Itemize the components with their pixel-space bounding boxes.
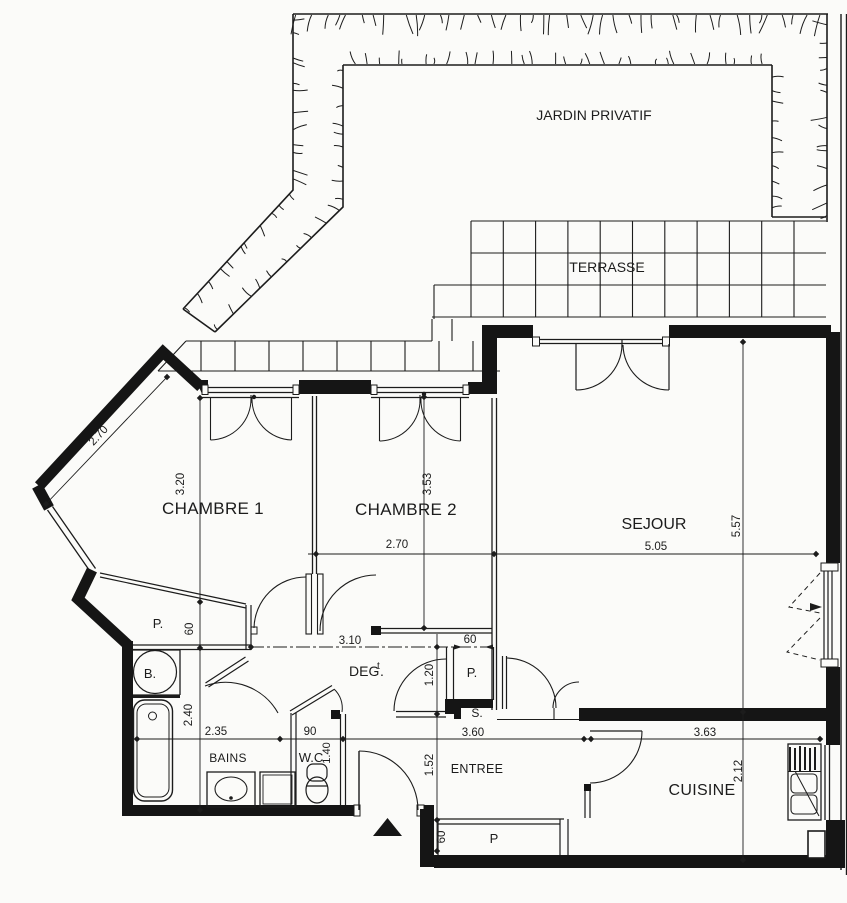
svg-text:TERRASSE: TERRASSE xyxy=(569,259,644,275)
svg-text:1.40: 1.40 xyxy=(321,742,333,763)
svg-text:2.70: 2.70 xyxy=(386,539,408,551)
svg-text:5.05: 5.05 xyxy=(645,541,667,553)
svg-text:3.60: 3.60 xyxy=(462,727,484,739)
svg-text:3.10: 3.10 xyxy=(339,635,361,647)
svg-text:1.52: 1.52 xyxy=(424,754,436,776)
svg-text:2.35: 2.35 xyxy=(205,726,227,738)
svg-text:BAINS: BAINS xyxy=(209,751,247,765)
svg-text:JARDIN PRIVATIF: JARDIN PRIVATIF xyxy=(536,107,651,123)
svg-text:2.12: 2.12 xyxy=(733,760,745,782)
svg-text:60: 60 xyxy=(436,831,448,844)
svg-text:60: 60 xyxy=(464,634,477,646)
svg-text:3.53: 3.53 xyxy=(422,473,434,495)
svg-text:P.: P. xyxy=(153,616,164,631)
svg-text:ENTREE: ENTREE xyxy=(451,762,504,776)
svg-text:B.: B. xyxy=(144,666,156,681)
svg-text:P.: P. xyxy=(467,665,478,680)
svg-text:5.57: 5.57 xyxy=(731,515,743,537)
svg-text:2.40: 2.40 xyxy=(183,704,195,726)
svg-text:S.: S. xyxy=(471,706,482,720)
svg-text:90: 90 xyxy=(304,726,317,738)
svg-text:CHAMBRE 2: CHAMBRE 2 xyxy=(355,500,457,519)
svg-text:W.C: W.C xyxy=(299,750,324,765)
svg-text:.: . xyxy=(380,663,384,679)
svg-text:P: P xyxy=(490,831,499,846)
svg-text:DEG: DEG xyxy=(349,663,379,679)
svg-text:CUISINE: CUISINE xyxy=(669,782,736,799)
svg-text:60: 60 xyxy=(184,623,196,636)
svg-text:3.20: 3.20 xyxy=(175,473,187,495)
svg-text:SEJOUR: SEJOUR xyxy=(622,516,687,533)
svg-text:1.20: 1.20 xyxy=(424,664,436,686)
svg-text:CHAMBRE 1: CHAMBRE 1 xyxy=(162,499,264,518)
svg-text:3.63: 3.63 xyxy=(694,727,716,739)
